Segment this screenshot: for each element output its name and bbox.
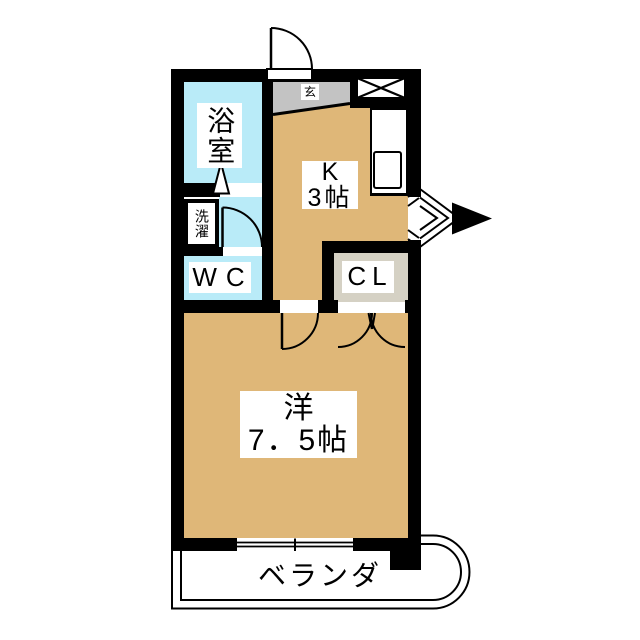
closet-door-arc-right [371, 313, 405, 347]
kitchen-label-line2: 3帖 [308, 185, 353, 211]
direction-arrow-hatches [408, 189, 419, 247]
laundry-label: 洗濯 [189, 204, 214, 243]
western-room-label: 洋 7．5帖 [240, 391, 357, 458]
western-room-label-line1: 洋 [284, 393, 314, 425]
wc-door-arc [223, 208, 263, 248]
closet-door-arc-left [338, 313, 372, 347]
western-room-label-line2: 7．5帖 [248, 425, 349, 457]
veranda-label: ベランダ [245, 556, 395, 592]
kitchen-label-line1: K [322, 159, 339, 185]
bathroom-label: 浴室 [197, 103, 242, 168]
wc-label: WC [189, 262, 251, 293]
symbols-svg [0, 0, 640, 640]
direction-arrow-head-icon [452, 203, 492, 235]
kitchen-label: K 3帖 [302, 161, 358, 209]
kitchen-door-arc [282, 313, 318, 349]
floorplan-canvas: 浴室 玄 K 3帖 洗濯 WC CL 洋 7．5帖 ベランダ [0, 0, 640, 640]
closet-label: CL [342, 261, 394, 293]
genkan-label: 玄 [301, 84, 319, 100]
entrance-door-arc [271, 28, 312, 69]
